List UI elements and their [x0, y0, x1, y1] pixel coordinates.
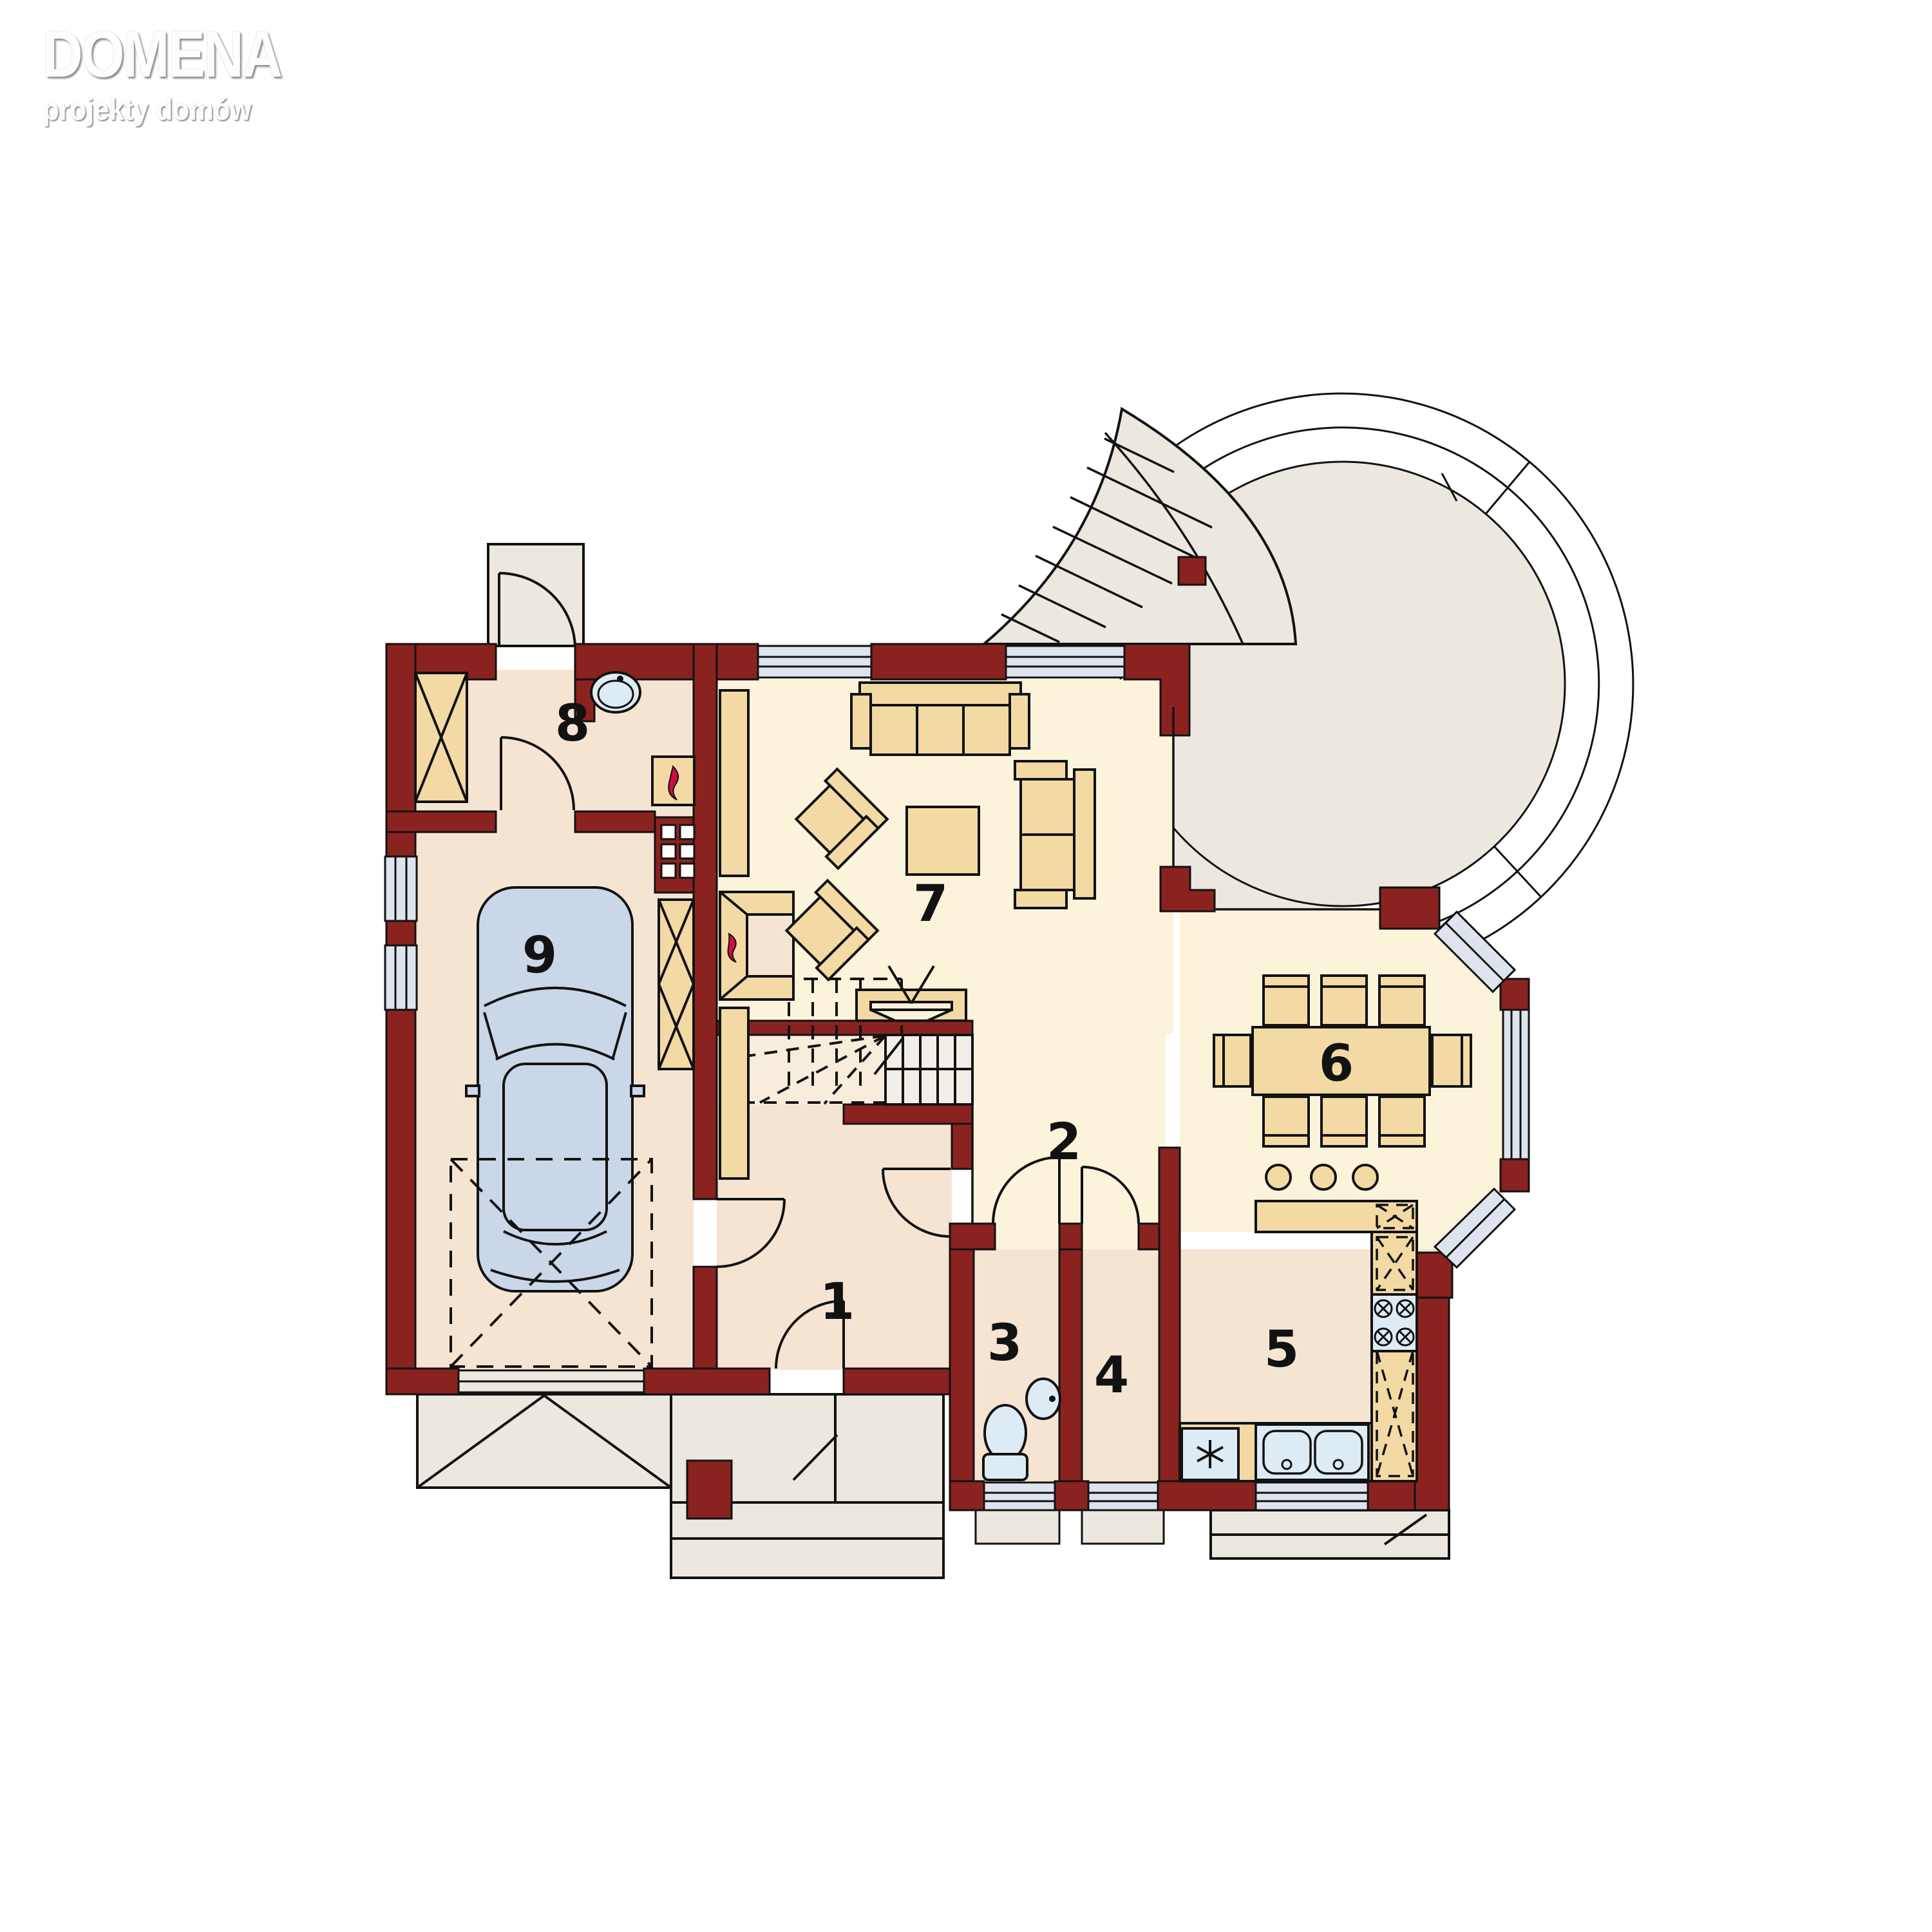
room-label-wc: 3	[987, 1314, 1022, 1372]
room-label-vestibule: 1	[820, 1273, 855, 1331]
bookshelf	[720, 690, 748, 876]
room-label-dining: 6	[1319, 1035, 1354, 1093]
wardrobe	[415, 673, 467, 802]
room-label-utility: 8	[555, 695, 590, 753]
room-label-hall: 2	[1046, 1113, 1081, 1171]
room-label-kitchen: 5	[1264, 1321, 1299, 1379]
living-room-window	[1006, 646, 1124, 677]
garage-window	[385, 857, 417, 921]
bar-stool	[1311, 1165, 1336, 1189]
dining-chair	[1379, 1097, 1425, 1146]
room-label-living: 7	[913, 875, 948, 933]
freezer	[1182, 1428, 1238, 1480]
tall-closet	[659, 900, 694, 1069]
bookshelf	[720, 1008, 748, 1179]
bar-stool	[1266, 1165, 1291, 1189]
bar-stool	[1353, 1165, 1378, 1189]
stove	[1372, 1294, 1417, 1351]
coffee-table	[907, 807, 979, 875]
garage-door	[459, 1370, 644, 1392]
dining-chair	[1379, 976, 1425, 1025]
garage-apron	[417, 1394, 671, 1488]
washbasin	[1027, 1379, 1060, 1419]
fireplace	[720, 892, 793, 999]
dining-chair	[1321, 976, 1367, 1025]
dining-chair	[1264, 1097, 1309, 1146]
kitchen-terrace-step	[1211, 1510, 1449, 1558]
dining-chair	[1264, 976, 1309, 1025]
window-sills	[976, 1510, 1164, 1544]
dining-chair	[1214, 1035, 1251, 1086]
dining-chair	[1321, 1097, 1367, 1146]
sofa-two-seat	[1015, 761, 1095, 908]
floor-plan: 1 2 3 4 5 6 7 8 9	[0, 0, 1932, 1932]
kitchen-sink	[1256, 1425, 1368, 1480]
kitchen-window	[1256, 1482, 1368, 1510]
bay-window-front	[1503, 1010, 1529, 1159]
utility-sink	[591, 672, 640, 712]
pantry-window	[1088, 1482, 1158, 1510]
toilet	[983, 1405, 1027, 1480]
rear-porch	[488, 544, 583, 647]
garage-window	[385, 945, 417, 1010]
room-label-pantry: 4	[1094, 1347, 1129, 1405]
living-room-window	[758, 646, 871, 677]
wc-window	[984, 1482, 1055, 1510]
page: DOMENA projekty domów	[0, 0, 1932, 1932]
boiler	[652, 757, 694, 805]
room-label-garage: 9	[522, 927, 557, 985]
dining-chair	[1432, 1035, 1471, 1086]
sofa-three-seat	[851, 683, 1029, 755]
